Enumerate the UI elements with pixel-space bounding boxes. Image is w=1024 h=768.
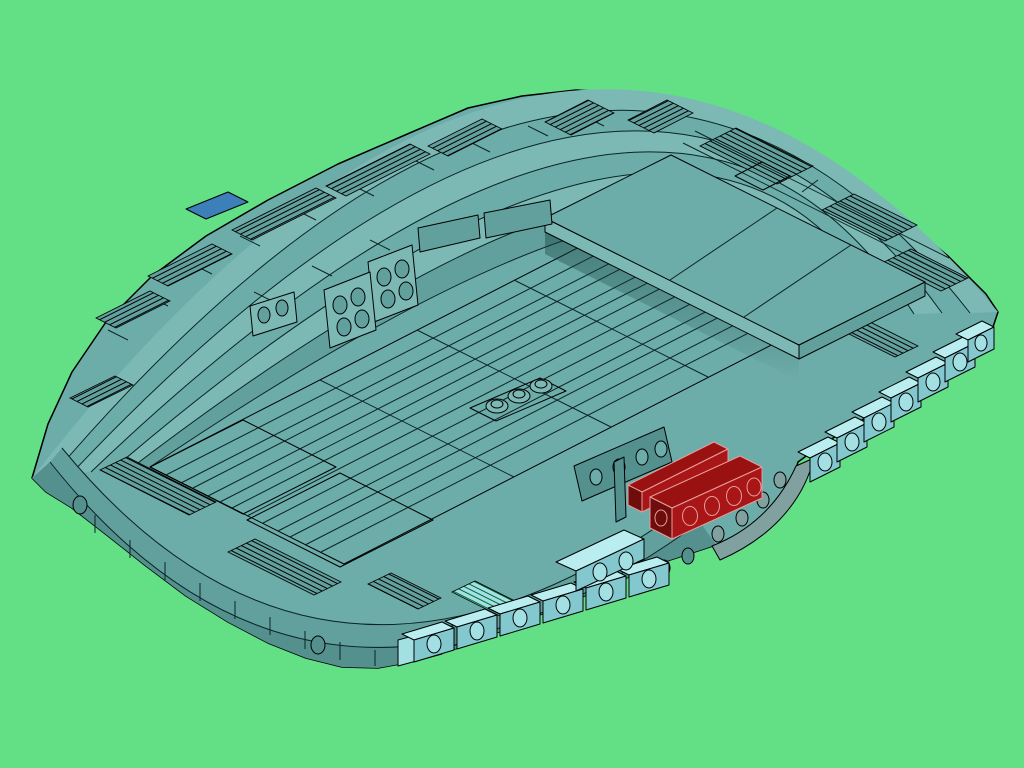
- model-render-canvas: [0, 0, 1024, 768]
- corner-post: [614, 457, 626, 522]
- render-viewport[interactable]: [0, 0, 1024, 768]
- left-rim-side-stud: [73, 496, 87, 514]
- left-rim-side-stud: [311, 636, 325, 654]
